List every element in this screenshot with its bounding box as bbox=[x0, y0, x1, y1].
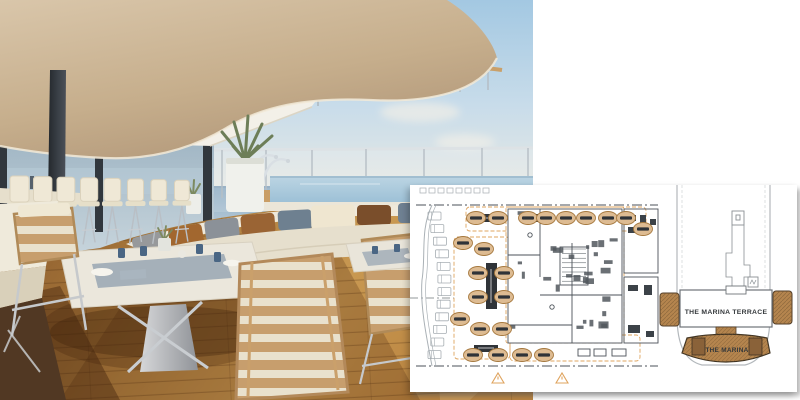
sofa-cushion bbox=[277, 209, 312, 231]
deck-loungers bbox=[428, 212, 451, 359]
galley-equipment-icon bbox=[602, 296, 610, 301]
table-seat-bar bbox=[478, 247, 490, 250]
warning-triangle-icons bbox=[492, 373, 568, 383]
galley-equipment-icon bbox=[598, 321, 608, 328]
lounger-icon bbox=[437, 300, 450, 308]
table-seat-bar bbox=[496, 327, 508, 330]
table-seat-bar bbox=[560, 216, 572, 219]
table-seat-bar bbox=[580, 216, 592, 219]
lounger-icon bbox=[433, 237, 446, 245]
lounger-icon bbox=[438, 275, 451, 283]
foreground-chair bbox=[236, 254, 348, 400]
galley-equipment-icon bbox=[586, 278, 594, 284]
table-seat-bar bbox=[498, 271, 510, 274]
galley-equipment-icon bbox=[594, 252, 598, 256]
galley-equipment-icon bbox=[602, 311, 606, 316]
lounger-icon bbox=[433, 325, 446, 333]
table-seat-bar bbox=[522, 216, 534, 219]
galley-equipment-icon bbox=[518, 261, 522, 264]
bar-stool bbox=[57, 177, 75, 201]
bar-stool bbox=[10, 176, 29, 202]
galley-equipment-icon bbox=[522, 272, 525, 279]
lounger-icon bbox=[438, 288, 451, 296]
table-seat-bar bbox=[472, 295, 484, 298]
page: THE MARINA TERRACE THE MARINA bbox=[0, 0, 800, 400]
galley-equipment-icon bbox=[551, 246, 557, 251]
galley-equipment-icon bbox=[601, 268, 611, 274]
galley-equipment-icon bbox=[566, 274, 572, 277]
lounger-icon bbox=[436, 313, 449, 321]
table-seat-bar bbox=[492, 216, 504, 219]
lounger-icon bbox=[437, 262, 450, 270]
bar-stool bbox=[128, 179, 144, 201]
lounger-icon bbox=[431, 225, 444, 233]
table-seat-bar bbox=[602, 216, 614, 219]
table-seat-bar bbox=[538, 353, 550, 356]
bar-stool bbox=[175, 180, 190, 200]
galley-equipment-icon bbox=[604, 260, 613, 264]
galley-equipment-icon bbox=[592, 241, 598, 247]
table-seat-bar bbox=[620, 216, 632, 219]
deck-plan-overlay: THE MARINA TERRACE THE MARINA bbox=[410, 185, 797, 392]
bar-stool bbox=[81, 178, 98, 202]
table-seat-bar bbox=[470, 216, 482, 219]
galley-equipment-icon bbox=[589, 320, 593, 327]
sofa-cushion bbox=[357, 205, 391, 225]
marina-terrace-label: THE MARINA TERRACE bbox=[685, 309, 768, 316]
ship-locator-plan: THE MARINA TERRACE THE MARINA bbox=[660, 185, 792, 365]
marina-label: THE MARINA bbox=[705, 347, 748, 354]
table-seat-bar bbox=[498, 295, 510, 298]
lounger-icon bbox=[431, 338, 444, 346]
galley-equipment-icon bbox=[543, 277, 551, 281]
galley-equipment-icon bbox=[576, 326, 583, 329]
table-seat-bar bbox=[540, 216, 552, 219]
detailed-deck-plan bbox=[410, 188, 658, 366]
galley-equipment-icon bbox=[586, 245, 589, 249]
galley-equipment-icon bbox=[583, 320, 586, 324]
bar-stool bbox=[34, 177, 52, 202]
galley-equipment-icon bbox=[573, 275, 580, 281]
table-seat-bar bbox=[472, 271, 484, 274]
galley-equipment-icon bbox=[598, 240, 604, 247]
table-seat-bar bbox=[454, 317, 466, 320]
table-seat-bar bbox=[637, 227, 649, 230]
lounger-icon bbox=[428, 212, 441, 220]
table-seat-bar bbox=[474, 327, 486, 330]
galley-equipment-icon bbox=[610, 238, 618, 241]
table-seat-bar bbox=[492, 353, 504, 356]
lounger-icon bbox=[436, 250, 449, 258]
table-seat-bar bbox=[467, 353, 479, 356]
bar-stool bbox=[104, 178, 121, 201]
galley-equipment-icon bbox=[556, 285, 560, 292]
table-seat-bar bbox=[457, 241, 469, 244]
bar-stool bbox=[151, 180, 166, 201]
table-seat-bar bbox=[516, 353, 528, 356]
